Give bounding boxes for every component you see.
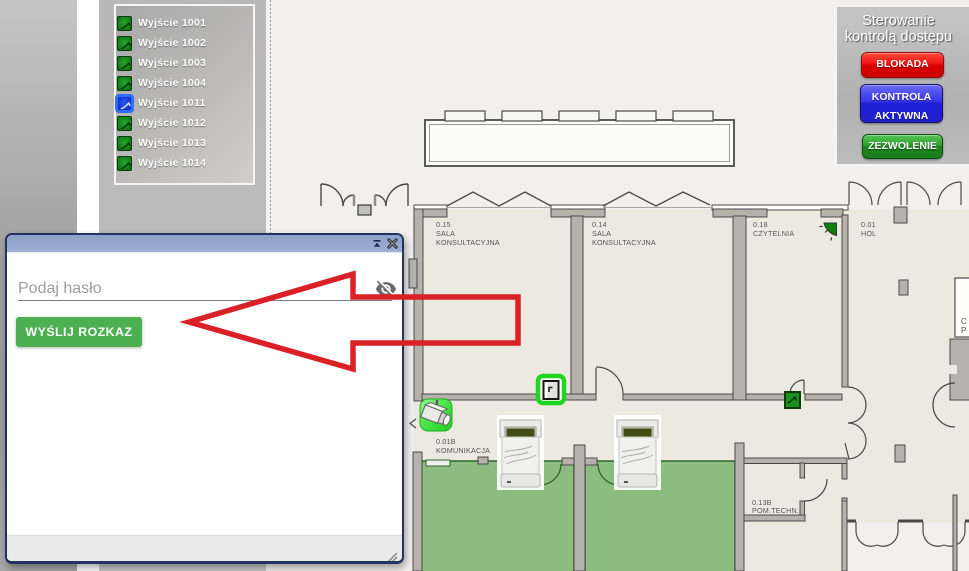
svg-text:SALA: SALA xyxy=(592,229,611,238)
svg-text:KOMUNIKACJA: KOMUNIKACJA xyxy=(436,446,490,455)
svg-text:KONSULTACYJNA: KONSULTACYJNA xyxy=(436,238,500,247)
svg-text:0.01B: 0.01B xyxy=(436,437,456,446)
svg-text:CZYTELNIA: CZYTELNIA xyxy=(753,229,794,238)
svg-text:KONSULTACYJNA: KONSULTACYJNA xyxy=(592,238,656,247)
svg-text:SALA: SALA xyxy=(436,229,455,238)
svg-text:0.01: 0.01 xyxy=(861,220,876,229)
svg-text:0.14: 0.14 xyxy=(592,220,607,229)
svg-text:HOL: HOL xyxy=(861,229,876,238)
svg-text:0.18: 0.18 xyxy=(753,220,768,229)
svg-text:0.15: 0.15 xyxy=(436,220,451,229)
svg-text:C: C xyxy=(961,317,967,326)
svg-text:POM.TECHN.: POM.TECHN. xyxy=(752,506,799,515)
svg-text:P: P xyxy=(961,326,966,335)
